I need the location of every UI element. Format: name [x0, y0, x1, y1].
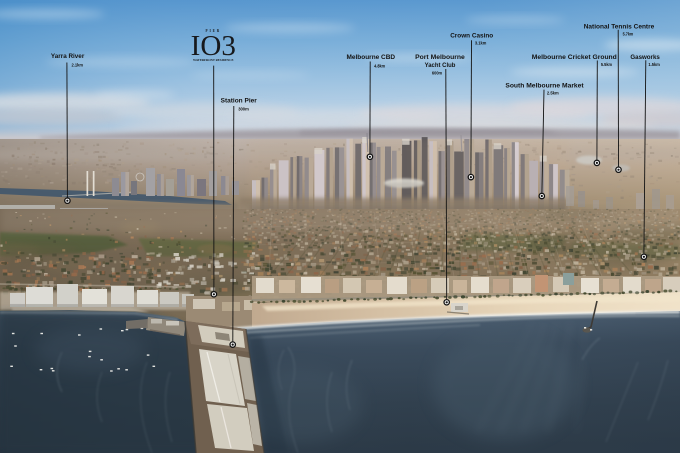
svg-text:Crown Casino: Crown Casino: [450, 33, 493, 40]
svg-text:Gasworks: Gasworks: [630, 54, 660, 61]
svg-text:Melbourne CBD: Melbourne CBD: [347, 54, 396, 61]
svg-text:IO3: IO3: [191, 31, 236, 62]
svg-text:Melbourne Cricket Ground: Melbourne Cricket Ground: [532, 54, 617, 61]
svg-text:4.8km: 4.8km: [374, 63, 385, 68]
svg-text:Yarra River: Yarra River: [51, 53, 85, 60]
svg-text:5.7km: 5.7km: [623, 32, 634, 37]
svg-text:Yacht Club: Yacht Club: [425, 62, 456, 69]
svg-text:300m: 300m: [238, 106, 249, 111]
svg-text:Port Melbourne: Port Melbourne: [415, 54, 465, 61]
svg-text:2.5km: 2.5km: [547, 90, 559, 95]
svg-text:3.1km: 3.1km: [475, 41, 486, 46]
svg-text:2.1km: 2.1km: [72, 62, 84, 67]
svg-text:Station Pier: Station Pier: [221, 97, 258, 104]
svg-text:5.5km: 5.5km: [601, 62, 612, 67]
svg-text:600m: 600m: [432, 71, 442, 76]
svg-text:South Melbourne Market: South Melbourne Market: [505, 82, 584, 89]
svg-text:1.5km: 1.5km: [648, 62, 659, 67]
svg-text:National Tennis Centre: National Tennis Centre: [584, 23, 655, 30]
svg-text:WATERFRONT RESIDENCE: WATERFRONT RESIDENCE: [193, 58, 234, 62]
